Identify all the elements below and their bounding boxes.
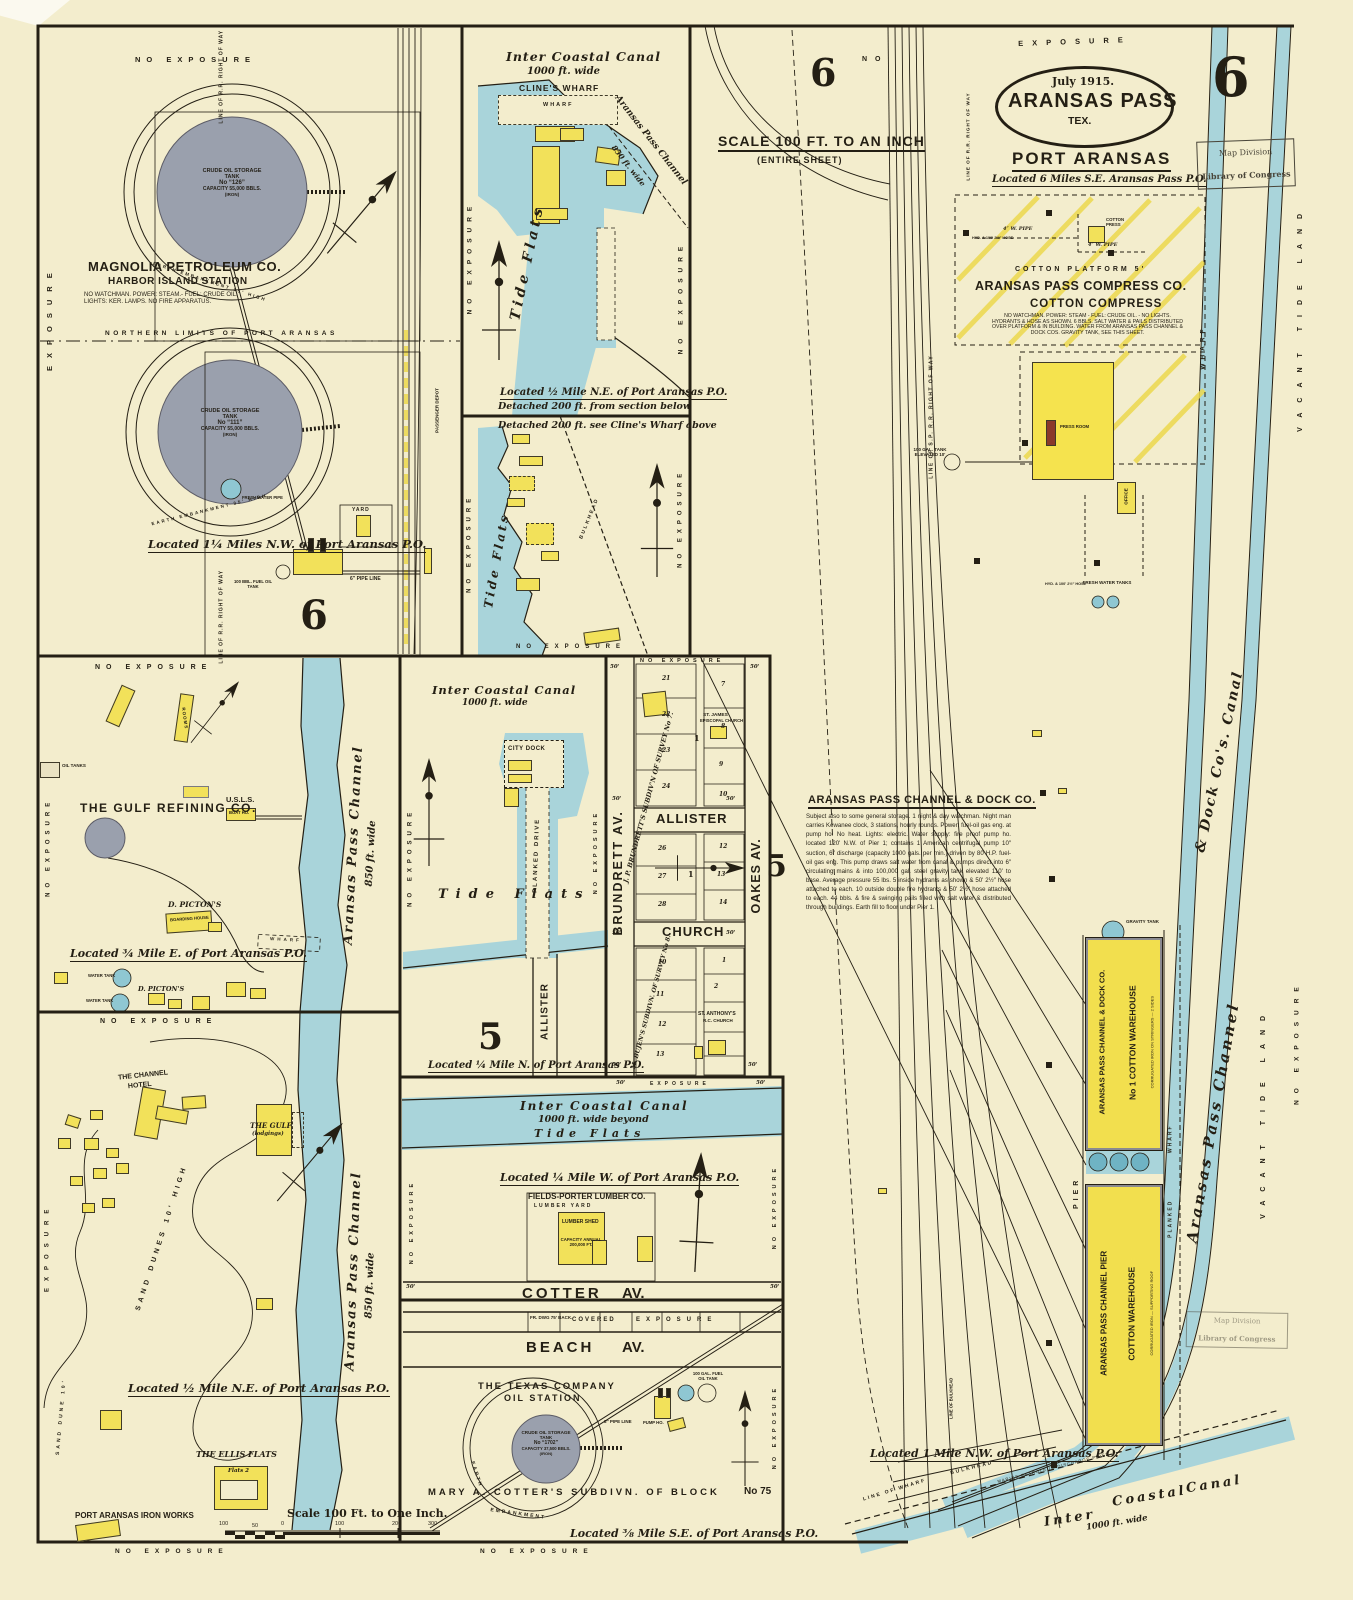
exposure-left-label: EXPOSURE [45,1117,52,1377]
canal-name: Inter Coastal Canal [520,1100,689,1113]
scale-bar [225,1528,440,1539]
usls-label: U.S.L.S. [226,796,254,804]
fresh-water-label: FRESH WATER PIPE [242,496,284,501]
tank-1702-label: CRUDE OIL STORAGE TANK No “1702” CAPACIT… [511,1430,581,1456]
dim-50: 50' [726,796,735,802]
shore-building [526,523,554,545]
lot-number: 11 [656,992,664,999]
lumber-capacity-label: CAPACITY ANNUAL 200,000 FT. [558,1238,604,1247]
sheet-scale-note: (ENTIRE SHEET) [757,156,843,166]
beach-street: BEACH [526,1340,594,1357]
tank-111-label: CRUDE OIL STORAGE TANK No “111” CAPACITY… [185,408,275,437]
clines-detached: Detached 200 ft. from section below [498,402,691,412]
no-exposure-label: NO EXPOSURE [467,463,474,623]
loc-stamp-bottom: Map Division Library of Congress [1186,1311,1289,1349]
no-label: NO [862,56,889,64]
tank-line: (IRON) [185,432,275,437]
warehouse1-name: ARANSAS PASS CHANNEL & DOCK CO. [1098,940,1106,1145]
no-exposure-label: NO EXPOSURE [115,1548,229,1555]
lot-number: 28 [658,902,666,909]
vacant-tide-land-label: VACANT TIDE LAND [1297,108,1305,528]
oil-tanks-label: OIL TANKS [62,764,92,769]
no-exposure-label: NO EXPOSURE [409,1157,415,1287]
hose-house [1032,730,1042,737]
scalebar-tick: 200 [392,1521,401,1527]
dune-cottage [102,1198,115,1208]
section-number-6: 6 [810,52,836,94]
oil-station-label: OIL STATION [504,1394,582,1404]
covered-label: COVERED [572,1317,616,1324]
wharf-label: WHARF [543,102,573,108]
office-label: OFFICE [1125,480,1130,512]
shore-detached: Detached 200 ft. see Cline's Wharf above [498,421,717,431]
gravity-tank-label: GRAVITY TANK [1126,920,1162,925]
scalebar-tick: 0 [281,1521,284,1527]
hotel-annex [182,1095,207,1110]
section-number-6: 6 [300,594,328,638]
stamp-line2: Library of Congress [1198,169,1294,182]
dune-cottage [84,1138,99,1150]
cottage [54,972,68,984]
no-exposure-label: NO EXPOSURE [100,1018,217,1026]
no-exposure-label: NO EXPOSURE [677,188,684,408]
gulf-lodgings-label2: (lodgings) [252,1131,284,1137]
clines-wharf-name: CLINE'S WHARF [519,84,599,93]
wharf-label: WHARF [1168,1109,1174,1169]
compress-notes: NO WATCHMAN. POWER: STEAM - FUEL: CRUDE … [975,314,1200,337]
scalebar-tick: 50 [252,1523,258,1529]
warehouse1-label: No 1 COTTON WAREHOUSE [1128,943,1137,1143]
dune-cottage [70,1176,83,1186]
lot-number: 7 [721,682,725,689]
boiler [1046,420,1056,446]
water-tank-label: WATER TANK [88,974,115,979]
cottage [192,996,210,1010]
compress-company: ARANSAS PASS COMPRESS CO. [975,280,1187,294]
wharf-building [606,170,626,186]
dim-50: 50' [750,664,759,670]
cotter-street: COTTER [522,1286,602,1303]
block-number: 1 [694,734,700,743]
scalebar-tick: 100 [335,1521,344,1527]
magnolia-station: HARBOR ISLAND STATION [108,276,248,287]
dim-50: 50' [612,1062,621,1068]
w-pipe-label: 4″ W. PIPE [1088,243,1117,249]
texas-located: Located ⅜ Mile S.E. of Port Aransas P.O. [570,1528,818,1542]
canal-name: Inter Coastal Canal [432,684,576,697]
gulf-lodgings [256,1104,292,1156]
cottage [226,982,246,997]
allister-street: ALLISTER [656,812,728,826]
oakes-av: OAKES AV. [750,821,764,931]
tank-line: (IRON) [187,192,277,197]
dock-building [508,760,532,771]
planked-label: PLANKED [1168,1174,1174,1264]
iron-works-label: PORT ARANSAS IRON WORKS [75,1512,194,1521]
lot-number: 27 [658,874,666,881]
cotton-press-label: COTTON PRESS [1106,218,1138,227]
title-city: ARANSAS PASS [1008,90,1177,112]
lumber-company: FIELDS-PORTER LUMBER CO. [528,1193,645,1202]
rr-right-of-way-label: LINE OF R.R. RIGHT OF WAY [219,547,225,687]
line-of-bulkhead-label: LINE OF BULKHEAD [950,1358,955,1438]
oil-house [183,786,209,798]
yard-label: YARD [352,508,370,514]
outbuilding [637,1236,653,1262]
lot-number: 26 [658,846,666,853]
hyd-hose-label: HYD. & 100' 2½″ HOSE [972,236,1014,240]
gulf-located: Located ¾ Mile E. of Port Aransas P.O. [70,948,307,962]
section-number-5: 5 [766,850,787,883]
dim-50: 50' [616,1080,625,1086]
yard-shed [356,515,371,537]
sand-dune-outlines [44,1038,286,1460]
no-exposure-label: NO EXPOSURE [772,1137,778,1277]
magnolia-company: MAGNOLIA PETROLEUM CO. [88,260,281,274]
dockco-description: Subject also to some general storage. 1 … [806,812,1011,913]
lot-number: 21 [662,676,670,683]
st-anthonys-church [708,1040,726,1055]
block-75-label: No 75 [744,1486,771,1497]
stamp-line1: Map Division [1197,146,1293,158]
lot-number: 14 [719,900,727,907]
press-room-label: PRESS ROOM [1060,425,1094,430]
st-anthonys-label2: R.C. CHURCH [703,1019,733,1024]
stamp-line1: Map Division [1187,1316,1287,1326]
no-exposure-label: NO EXPOSURE [678,438,685,598]
smokestack [658,1388,663,1398]
cotton-platform-label: COTTON PLATFORM 5' [1015,266,1146,274]
magnolia-notes: NO WATCHMAN. POWER: STEAM.- FUEL: CRUDE … [84,292,238,305]
section-number-5: 5 [478,1018,503,1058]
canal-name: Inter Coastal Canal [506,50,661,64]
sp-rr-label: LINE OF S.P. R.R. RIGHT OF WAY [929,312,935,522]
block-number: 1 [688,870,694,879]
wharf-deck [498,95,618,125]
shore-building [541,551,559,561]
lot-number: 13 [656,1052,664,1059]
title-date: July 1915. [1052,76,1114,88]
dock-building [504,788,519,807]
dim-50: 50' [748,1062,757,1068]
exposure-left-label: EXPOSURE [46,208,54,428]
no-exposure-label: NO EXPOSURE [46,747,53,947]
lumber-located: Located ¼ Mile W. of Port Aransas P.O. [500,1172,739,1186]
canal-width: 1000 ft. wide [462,699,528,709]
allister-street: ALLISTER [540,957,551,1067]
dim-50: 50' [756,1080,765,1086]
shore-building [519,456,543,466]
no-exposure-label: NO EXPOSURE [593,777,599,927]
w-pipe-label: 4″ W. PIPE [1003,227,1032,233]
tide-flats-label: Tide Flats [534,1128,645,1140]
no-exposure-label: NO EXPOSURE [135,56,256,64]
pipe-line-label: 8″ PIPE LINE [604,1420,632,1425]
lot-number: 13 [717,872,725,879]
dockco-heading: ARANSAS PASS CHANNEL & DOCK CO. [808,794,1036,809]
wharf-building [560,128,584,141]
fuel-tank-label: 100 BBL. FUEL OIL TANK [228,580,278,589]
dune-cottage [106,1148,119,1158]
dune-cottage [100,1410,122,1430]
pump-house [293,549,343,575]
no-exposure-label: NO EXPOSURE [408,762,415,952]
sheet-scale: SCALE 100 FT. TO AN INCH [718,134,925,152]
boat-house-label: BOAT HO. [229,811,249,816]
rr-right-of-way-label: LINE OF R.R. RIGHT OF WAY [965,52,970,222]
dune-cottage [116,1163,129,1174]
lot-number: 24 [662,784,670,791]
no-exposure-label: NO EXPOSURE [95,664,212,672]
title-place: PORT ARANSAS [1012,150,1171,172]
lumber-yard-label: LUMBER YARD [534,1204,592,1210]
dune-cottage [90,1110,103,1120]
tank-126-label: CRUDE OIL STORAGE TANK No “126” CAPACITY… [187,168,277,197]
shore-building [512,434,530,444]
ellis-flats-label: THE ELLIS FLATS [196,1450,277,1459]
title-located: Located 6 Miles S.E. Aransas Pass P.O. [992,174,1207,187]
dim-50: 50' [612,930,621,936]
elevated-tank-label: 100 GAL. TANK ELEVATED 10' [908,448,952,458]
cotter-av: AV. [622,1286,645,1303]
flats-2-label: Flats 2 [228,1468,249,1474]
pipe-line-label: 6″ PIPE LINE [350,577,381,583]
fr-dwg-label: FR. DWG 75' BACK. [530,1316,572,1321]
warehouse2-label: COTTON WAREHOUSE [1127,1199,1136,1429]
warehouse2-note: CORRUGATED IRON — SUPPORTING ROOF [1150,1193,1154,1433]
title-state: TEX. [1068,116,1091,128]
vacant-tide-land-label: VACANT TIDE LAND [1260,928,1268,1298]
pictons-label2: D. PICTON'S [138,986,184,993]
lot-number: 8 [721,724,725,731]
pier-label: PIER [1073,1148,1081,1238]
dock-building [508,774,532,783]
scalebar-label: Scale 100 Ft. to One Inch. [287,1508,447,1520]
northern-limits-label: NORTHERN LIMITS OF PORT ARANSAS [105,330,338,337]
no-exposure-label: NO EXPOSURE [772,1352,778,1502]
dim-50: 50' [612,796,621,802]
scalebar-tick: 300 [428,1521,437,1527]
city-dock-label: CITY DOCK [508,746,545,753]
shore-building [509,476,535,491]
dune-cottage [256,1298,273,1310]
lot-number: 22 [662,712,670,719]
clines-located: Located ½ Mile N.E. of Port Aransas P.O. [500,387,727,400]
tide-flats-label: Tide Flats [438,888,590,902]
st-anthonys-label1: ST. ANTHONY'S [698,1012,736,1018]
no-exposure-label: NO EXPOSURE [516,644,626,651]
cotton-press-building [1088,226,1105,243]
cottage [168,999,182,1009]
texas-pump-house [654,1396,671,1419]
cotton-compress-label: COTTON COMPRESS [1030,298,1162,311]
lot-number: 1 [722,958,726,965]
lot-number: 23 [662,748,670,755]
pictons-label: D. PICTON'S [168,901,221,909]
wharf-label: WHARF [1199,288,1206,408]
lot-number: 12 [719,844,727,851]
tank-line: (IRON) [511,1451,581,1456]
fuel-tank-label: 100 GAL. FUEL OIL TANK [690,1372,726,1381]
cottage [148,993,165,1005]
gulf-lodgings-label1: THE GULF [250,1122,292,1130]
canal-width: 1000 ft. wide beyond [538,1115,649,1125]
no-exposure-label: NO EXPOSURE [480,1548,594,1555]
texas-company-label: THE TEXAS COMPANY [478,1382,616,1392]
shore-building [516,578,540,591]
canal-width: 1000 ft. wide [527,66,600,77]
lot-number: 2 [714,984,718,991]
dim-50: 50' [610,664,619,670]
loc-stamp-top: Map Division Library of Congress [1196,138,1296,189]
dim-50: 50' [770,1284,779,1290]
hyd-hose-label: HYD. & 100' 2½″ HOSE [1045,582,1087,586]
dim-50: 50' [726,930,735,936]
compress-building [1032,362,1114,480]
no-exposure-label: NO EXPOSURE [1293,913,1300,1173]
pump-house-label: PUMP HO. [643,1421,664,1426]
lot-number: 10 [658,960,666,967]
dune-cottage [82,1203,95,1213]
outbuilding [208,922,222,932]
dune-cottage [58,1138,71,1149]
no-exposure-label: NO EXPOSURE [466,148,473,368]
cotters-subdiv-label: MARY A. COTTER'S SUBDIVN. OF BLOCK [428,1488,720,1498]
rr-right-of-way-label: LINE OF R.R. RIGHT OF WAY [219,2,225,152]
gulf-lodgings-ext [292,1112,304,1148]
hose-house [1058,788,1067,794]
depot-label: PASSENGER DEPOT [436,370,441,450]
exposure-label: EXPOSURE [636,1317,717,1324]
beach-av: AV. [622,1340,645,1357]
cottage [250,988,266,999]
magnolia-located: Located 1¼ Miles N.W. of Port Aransas P.… [148,538,426,553]
dune-cottage [93,1168,107,1179]
ellis-flats-court [220,1480,258,1500]
stamp-line2: Library of Congress [1187,1333,1287,1344]
exposure-label: EXPOSURE [650,1082,710,1088]
warehouse2-name: ARANSAS PASS CHANNEL PIER [1101,1193,1110,1433]
lumber-shed-label: LUMBER SHED [562,1220,599,1226]
lot-number: 9 [719,762,723,769]
hose-house [878,1188,887,1194]
water-tank-label: WATER TANK [86,999,113,1004]
rectory [694,1046,703,1059]
page-number: 6 [1212,48,1250,107]
smokestack [666,1388,671,1398]
warehouse1-note: CORRUGATED IRON ON STRINGERS — 2 SIDES [1150,940,1154,1145]
scalebar-tick: 100 [219,1521,228,1527]
lot-number: 12 [658,1022,666,1029]
sanborn-map-sheet: July 1915. ARANSAS PASS TEX. PORT ARANSA… [0,0,1353,1600]
